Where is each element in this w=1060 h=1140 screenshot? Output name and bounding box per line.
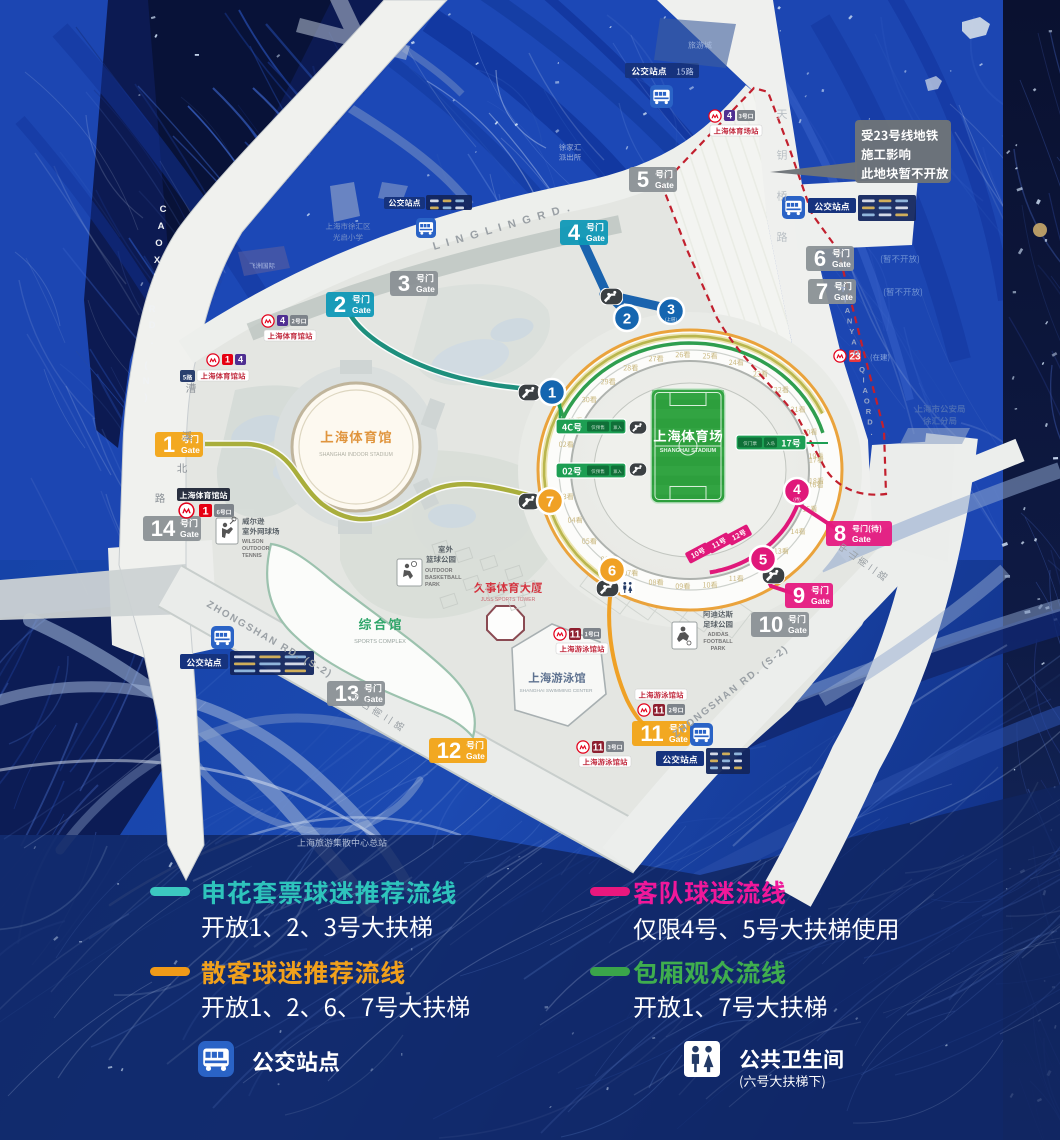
svg-text:Gate: Gate	[655, 180, 674, 190]
svg-text:A: A	[862, 386, 868, 395]
svg-text:D: D	[867, 418, 873, 427]
svg-text:Gate: Gate	[466, 751, 485, 761]
svg-text:Gate: Gate	[852, 534, 871, 544]
svg-text:12: 12	[437, 738, 461, 763]
svg-text:9: 9	[793, 583, 805, 608]
svg-text:Gate: Gate	[788, 625, 807, 635]
svg-text:Gate: Gate	[811, 596, 830, 606]
svg-text:2: 2	[623, 311, 631, 328]
svg-text:A: A	[845, 306, 851, 315]
svg-text:C: C	[160, 204, 167, 215]
svg-text:R: R	[149, 304, 156, 315]
svg-text:I: I	[863, 376, 865, 385]
svg-text:O: O	[864, 397, 870, 406]
svg-text:Gate: Gate	[180, 529, 199, 539]
svg-text:Gate: Gate	[416, 284, 435, 294]
svg-text:11: 11	[640, 721, 663, 746]
svg-text:11: 11	[570, 630, 581, 641]
svg-text:13: 13	[335, 681, 359, 706]
svg-text:7: 7	[816, 279, 828, 304]
svg-text:R: R	[866, 407, 872, 416]
svg-text:3: 3	[667, 301, 675, 317]
svg-text:SHANGHAI SWIMMING CENTER: SHANGHAI SWIMMING CENTER	[519, 688, 593, 694]
svg-text:D: D	[149, 320, 156, 331]
svg-text:A: A	[851, 338, 857, 347]
svg-text:8: 8	[834, 521, 846, 546]
svg-text:11: 11	[593, 743, 604, 754]
svg-text:FOOTBALL: FOOTBALL	[703, 639, 733, 645]
svg-text:.: .	[151, 336, 154, 347]
svg-text:Gate: Gate	[181, 445, 200, 455]
svg-text:PARK: PARK	[711, 646, 726, 652]
svg-text:4: 4	[280, 316, 285, 326]
svg-text:SHANGHAI INDOOR STADIUM: SHANGHAI INDOOR STADIUM	[319, 452, 393, 458]
svg-text:Gate: Gate	[352, 305, 371, 315]
svg-text:A: A	[158, 221, 165, 232]
svg-text:.: .	[871, 428, 873, 437]
svg-text:1: 1	[163, 432, 175, 457]
svg-text:Gate: Gate	[364, 694, 383, 704]
svg-text:Gate: Gate	[832, 259, 851, 269]
svg-text:1: 1	[225, 355, 230, 365]
svg-text:): )	[144, 392, 147, 403]
svg-text:Gate: Gate	[586, 233, 605, 243]
svg-text:6: 6	[814, 246, 826, 271]
svg-text:5: 5	[759, 552, 767, 569]
svg-text:O: O	[853, 348, 859, 357]
svg-text:Q: Q	[859, 365, 865, 374]
svg-text:7: 7	[546, 494, 554, 511]
svg-text:6: 6	[608, 563, 616, 580]
svg-text:WILSON: WILSON	[242, 539, 264, 545]
svg-text:TENNIS: TENNIS	[242, 553, 262, 559]
svg-text:10: 10	[759, 612, 783, 637]
svg-text:BASKETBALL: BASKETBALL	[425, 575, 462, 581]
svg-text:4: 4	[568, 220, 581, 245]
svg-text:T: T	[841, 285, 846, 294]
svg-text:SHANGHAI STADIUM: SHANGHAI STADIUM	[660, 448, 717, 454]
svg-text:O: O	[155, 238, 162, 249]
svg-text:N: N	[143, 376, 150, 387]
svg-text:11: 11	[654, 706, 665, 717]
svg-text:4: 4	[238, 355, 243, 365]
svg-text:5: 5	[637, 167, 649, 192]
svg-text:N: N	[847, 317, 852, 326]
svg-text:1: 1	[548, 385, 556, 402]
svg-text:SPORTS COMPLEX: SPORTS COMPLEX	[354, 639, 406, 645]
svg-text:1: 1	[202, 506, 208, 518]
svg-text:OUTDOOR: OUTDOOR	[425, 568, 453, 574]
svg-text:I: I	[844, 296, 846, 305]
svg-text:14: 14	[151, 516, 176, 541]
svg-text:Y: Y	[849, 327, 854, 336]
svg-text:2: 2	[334, 292, 346, 317]
svg-text:4: 4	[793, 481, 801, 497]
svg-text:PARK: PARK	[425, 582, 440, 588]
svg-text:OUTDOOR: OUTDOOR	[242, 546, 270, 552]
svg-text:3: 3	[398, 271, 410, 296]
svg-text:I: I	[154, 272, 157, 283]
svg-text:X: X	[154, 255, 161, 266]
svg-text:4: 4	[727, 111, 732, 121]
svg-text:ADIDAS: ADIDAS	[708, 632, 729, 638]
